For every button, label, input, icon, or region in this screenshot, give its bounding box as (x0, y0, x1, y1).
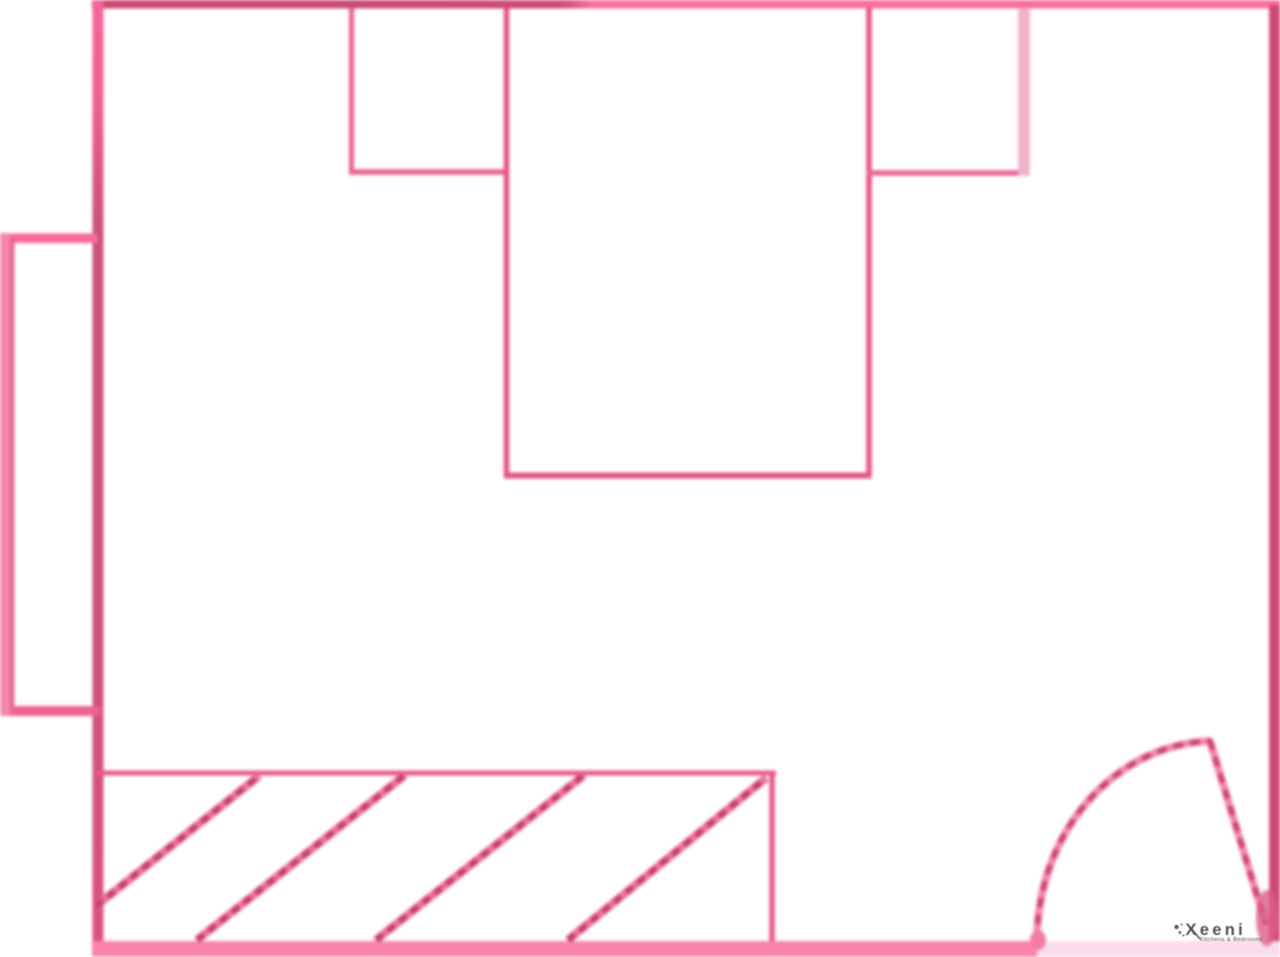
svg-text:Kitchens & Bedrooms: Kitchens & Bedrooms (1200, 937, 1263, 943)
